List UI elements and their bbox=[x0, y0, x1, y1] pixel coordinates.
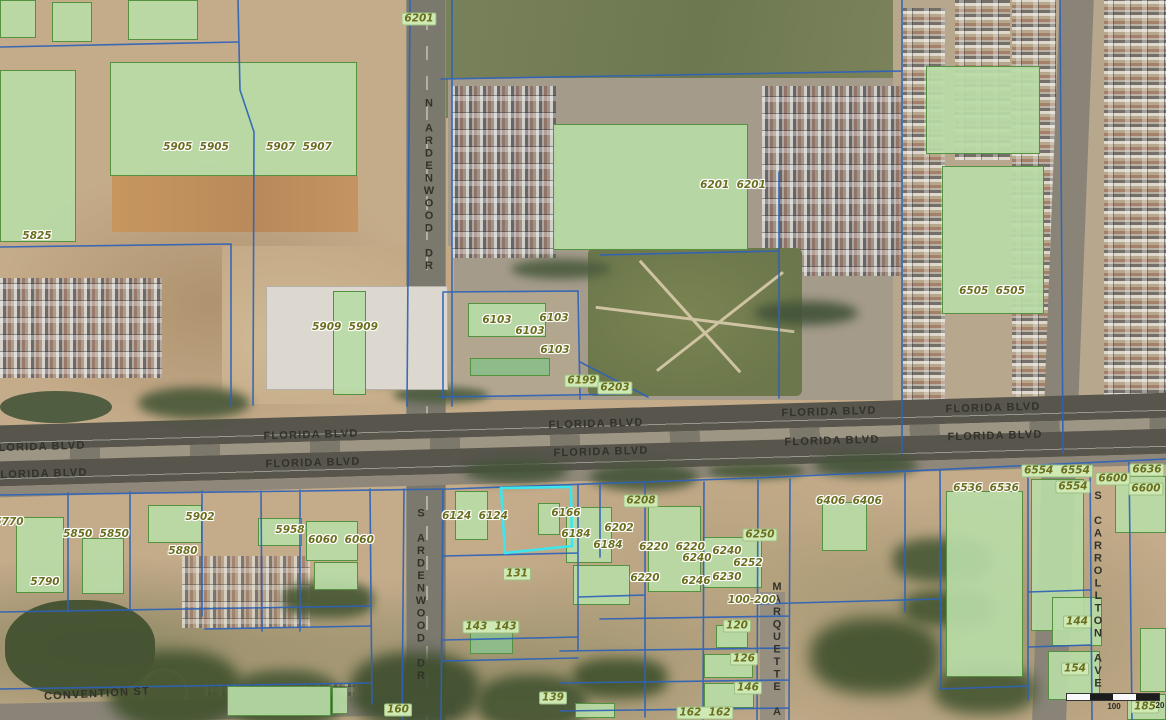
building-6600 bbox=[1115, 476, 1166, 533]
building-5958 bbox=[258, 518, 302, 546]
building-5790 bbox=[16, 517, 64, 593]
building-6184-b bbox=[573, 565, 630, 605]
building-143-courts bbox=[470, 629, 513, 654]
scale-bar-segment bbox=[1067, 694, 1090, 700]
building-right-edge bbox=[1140, 628, 1166, 692]
building-6103 bbox=[468, 303, 546, 337]
scale-bar bbox=[1066, 693, 1160, 701]
building-small-nw-2 bbox=[52, 2, 92, 42]
building-6220 bbox=[648, 506, 701, 592]
marquette-ave-road bbox=[760, 592, 785, 720]
building-126 bbox=[704, 654, 753, 678]
left-parking-area bbox=[0, 278, 162, 378]
building-5850 bbox=[82, 538, 124, 594]
tree-canopy-cluster bbox=[0, 391, 112, 423]
building-5902 bbox=[148, 505, 202, 543]
building-5825 bbox=[0, 70, 76, 242]
tree-canopy-cluster bbox=[5, 600, 155, 696]
map-viewport[interactable]: FLORIDA BLVDFLORIDA BLVDFLORIDA BLVDFLOR… bbox=[0, 0, 1166, 720]
building-144 bbox=[1052, 597, 1102, 646]
building-6240-cluster bbox=[703, 537, 762, 588]
building-small-nw-3 bbox=[128, 0, 198, 40]
building-5905-5907 bbox=[110, 62, 357, 176]
building-6406 bbox=[822, 502, 867, 551]
storage-yard bbox=[182, 556, 310, 628]
building-6184-a bbox=[566, 507, 612, 563]
building-south-edge bbox=[575, 703, 615, 718]
dealer-car-rows bbox=[1104, 0, 1166, 452]
building-146 bbox=[704, 683, 754, 708]
loading-dock-strip bbox=[112, 176, 358, 232]
building-6060-b bbox=[314, 562, 358, 590]
building-6060-a bbox=[306, 521, 358, 561]
building-160 bbox=[227, 686, 331, 716]
scale-bar-segment bbox=[1136, 694, 1159, 700]
building-6166 bbox=[538, 503, 560, 535]
building-6124 bbox=[455, 491, 488, 540]
building-ne-green bbox=[926, 66, 1040, 154]
building-5909-green bbox=[333, 291, 366, 395]
scale-bar-segment bbox=[1113, 694, 1136, 700]
building-120 bbox=[716, 625, 748, 648]
scale-bar-segment bbox=[1090, 694, 1113, 700]
building-160-annex bbox=[332, 687, 348, 714]
building-6103-courts bbox=[470, 358, 550, 376]
parking-lot-west-of-6201 bbox=[452, 86, 556, 258]
building-6505 bbox=[942, 166, 1044, 314]
building-small-nw-1 bbox=[0, 0, 36, 38]
building-6201 bbox=[553, 124, 748, 250]
building-6536 bbox=[946, 491, 1023, 677]
